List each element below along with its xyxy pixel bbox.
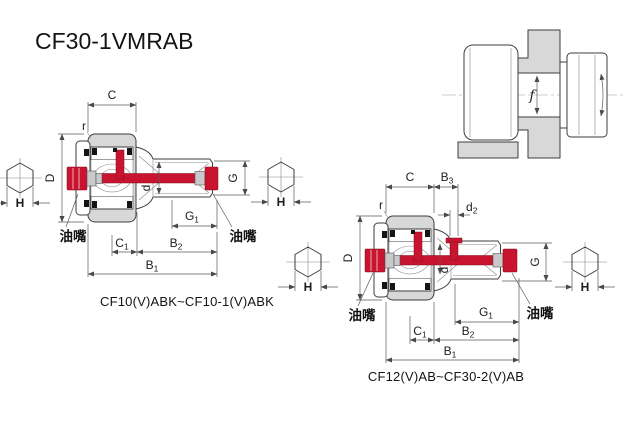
seal bbox=[390, 230, 395, 237]
side-grease-hole bbox=[450, 242, 458, 260]
seal bbox=[127, 201, 132, 208]
leader-line bbox=[512, 273, 530, 304]
label-sub: 1 bbox=[124, 242, 129, 252]
seal bbox=[425, 283, 430, 290]
label-sub: 1 bbox=[488, 311, 493, 321]
dim-label-g1: G1 bbox=[479, 305, 493, 321]
label-sub: 1 bbox=[452, 350, 457, 360]
label-main: G bbox=[479, 305, 488, 319]
label-main: C bbox=[115, 236, 124, 250]
seal bbox=[84, 149, 89, 156]
dim-label-stud-d: d bbox=[139, 185, 153, 192]
label-sub: 1 bbox=[154, 264, 159, 274]
mounting-plate-upper bbox=[518, 30, 560, 73]
dim-label-d-outer: D bbox=[341, 253, 355, 262]
label-main: C bbox=[413, 324, 422, 338]
leader-line bbox=[213, 194, 232, 227]
dim-label-b3: B3 bbox=[441, 170, 454, 186]
grease-nipple-label: 油嘴 bbox=[60, 228, 87, 244]
dim-label-f: f bbox=[528, 88, 537, 104]
nipple-hex-collar bbox=[195, 172, 205, 186]
hex-view: H bbox=[278, 242, 338, 294]
dim-label-h: H bbox=[16, 196, 25, 210]
seal bbox=[84, 200, 89, 207]
hex-view: H bbox=[555, 242, 615, 294]
label-sub: 1 bbox=[422, 330, 427, 340]
roller-band-bottom bbox=[91, 196, 133, 209]
seal bbox=[127, 148, 132, 155]
seal bbox=[92, 201, 97, 208]
left-section-diagram: C r D d G G1 C1 B2 B1 油嘴 bbox=[43, 88, 274, 309]
diagram-caption: CF10(V)ABK~CF10-1(V)ABK bbox=[100, 294, 274, 309]
mounting-diagram: f bbox=[442, 30, 624, 158]
label-sub: 2 bbox=[470, 330, 475, 340]
nipple-hex-collar bbox=[394, 256, 400, 266]
hex-view: H bbox=[0, 158, 50, 210]
grease-nipple-label: 油嘴 bbox=[349, 307, 376, 323]
label-sub: 2 bbox=[178, 242, 183, 252]
grease-channel-vertical bbox=[414, 232, 422, 261]
dim-label-d-outer: D bbox=[43, 173, 57, 182]
grease-nipple-left bbox=[365, 249, 385, 272]
channel-plug bbox=[113, 148, 117, 152]
washer bbox=[560, 62, 567, 128]
right-section-diagram: C B3 r d2 D d G G1 C1 B2 bbox=[341, 170, 554, 384]
grease-nipple-label: 油嘴 bbox=[527, 305, 555, 321]
seal bbox=[382, 231, 387, 238]
leader-line bbox=[384, 211, 389, 219]
nipple-hex-collar bbox=[493, 254, 503, 268]
label-main: d bbox=[466, 200, 473, 214]
technical-drawing: CF30-1VMRAB bbox=[0, 0, 640, 440]
channel-plug bbox=[411, 230, 415, 234]
seal bbox=[382, 282, 387, 289]
label-main: G bbox=[185, 209, 194, 223]
dim-label-stud-d: d bbox=[437, 267, 451, 274]
label-main: B bbox=[146, 258, 154, 272]
grease-nipple-right bbox=[503, 249, 517, 272]
track-rail bbox=[458, 142, 518, 158]
mounting-plate-lower bbox=[518, 117, 560, 158]
page-title: CF30-1VMRAB bbox=[35, 28, 193, 54]
label-sub: 1 bbox=[194, 215, 199, 225]
dim-label-r: r bbox=[379, 198, 383, 212]
dim-label-g: G bbox=[528, 257, 542, 266]
dim-label-b2: B2 bbox=[462, 324, 475, 340]
dim-label-g: G bbox=[226, 173, 240, 182]
nipple-hex-collar bbox=[87, 171, 96, 186]
dim-label-b2: B2 bbox=[170, 236, 183, 252]
hex-view: H bbox=[251, 157, 311, 209]
dim-label-h: H bbox=[277, 195, 286, 209]
label-main: B bbox=[170, 236, 178, 250]
grease-nipple-left bbox=[67, 167, 87, 190]
grease-nipple-right bbox=[205, 167, 218, 190]
roller-band-top bbox=[389, 229, 431, 242]
dim-label-g1: G1 bbox=[185, 209, 199, 225]
drawing-page: CF30-1VMRAB bbox=[0, 0, 640, 440]
dim-label-d2: d2 bbox=[466, 200, 478, 216]
dim-label-c1: C1 bbox=[115, 236, 129, 252]
label-main: B bbox=[444, 344, 452, 358]
dim-label-c: C bbox=[108, 88, 117, 102]
label-sub: 3 bbox=[449, 176, 454, 186]
grease-nipple-label: 油嘴 bbox=[230, 228, 257, 244]
roller-band-top bbox=[91, 147, 133, 160]
label-main: B bbox=[441, 170, 449, 184]
dim-label-h: H bbox=[581, 280, 590, 294]
nipple-hex-collar bbox=[96, 174, 102, 184]
label-main: B bbox=[462, 324, 470, 338]
grease-channel-vertical bbox=[116, 150, 124, 179]
roller-band-bottom bbox=[389, 278, 431, 291]
dim-label-h: H bbox=[304, 280, 313, 294]
dim-label-b1: B1 bbox=[146, 258, 159, 274]
dim-label-b1: B1 bbox=[444, 344, 457, 360]
roller-outer-ring bbox=[464, 45, 518, 140]
dim-label-r: r bbox=[82, 119, 86, 133]
label-sub: 2 bbox=[473, 206, 478, 216]
hex-nut-side-view bbox=[567, 53, 607, 137]
seal bbox=[92, 148, 97, 155]
seal bbox=[425, 230, 430, 237]
dim-label-c: C bbox=[406, 170, 415, 184]
nipple-hex-collar bbox=[385, 253, 394, 268]
dim-label-c1: C1 bbox=[413, 324, 427, 340]
seal bbox=[390, 283, 395, 290]
diagram-caption: CF12(V)AB~CF30-2(V)AB bbox=[368, 369, 524, 384]
